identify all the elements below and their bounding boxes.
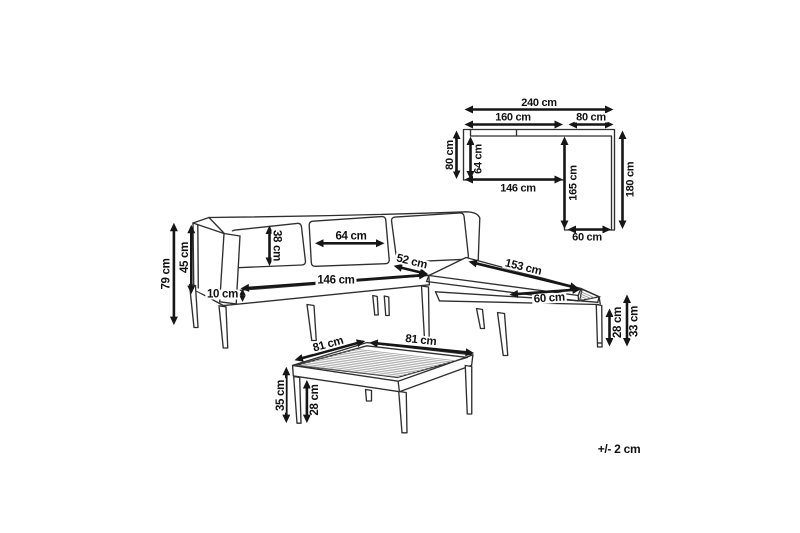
svg-text:64 cm: 64 cm	[335, 231, 366, 243]
svg-text:28 cm: 28 cm	[612, 307, 624, 338]
svg-text:80 cm: 80 cm	[576, 112, 606, 124]
svg-text:38 cm: 38 cm	[271, 230, 283, 261]
svg-text:35 cm: 35 cm	[275, 380, 287, 411]
svg-text:146 cm: 146 cm	[317, 275, 354, 287]
svg-text:146 cm: 146 cm	[500, 183, 536, 195]
svg-text:10 cm: 10 cm	[207, 289, 238, 301]
svg-text:60 cm: 60 cm	[572, 232, 602, 244]
svg-text:80 cm: 80 cm	[444, 140, 456, 170]
svg-text:165 cm: 165 cm	[568, 165, 580, 201]
svg-text:160 cm: 160 cm	[495, 112, 531, 124]
svg-text:45 cm: 45 cm	[179, 242, 191, 273]
svg-text:28 cm: 28 cm	[309, 384, 321, 415]
svg-text:64 cm: 64 cm	[473, 144, 485, 174]
svg-text:79 cm: 79 cm	[161, 258, 173, 289]
svg-text:+/- 2 cm: +/- 2 cm	[598, 442, 641, 456]
svg-text:180 cm: 180 cm	[625, 161, 637, 197]
svg-text:240 cm: 240 cm	[521, 97, 557, 109]
svg-text:60 cm: 60 cm	[533, 291, 565, 305]
svg-text:33 cm: 33 cm	[629, 306, 641, 337]
